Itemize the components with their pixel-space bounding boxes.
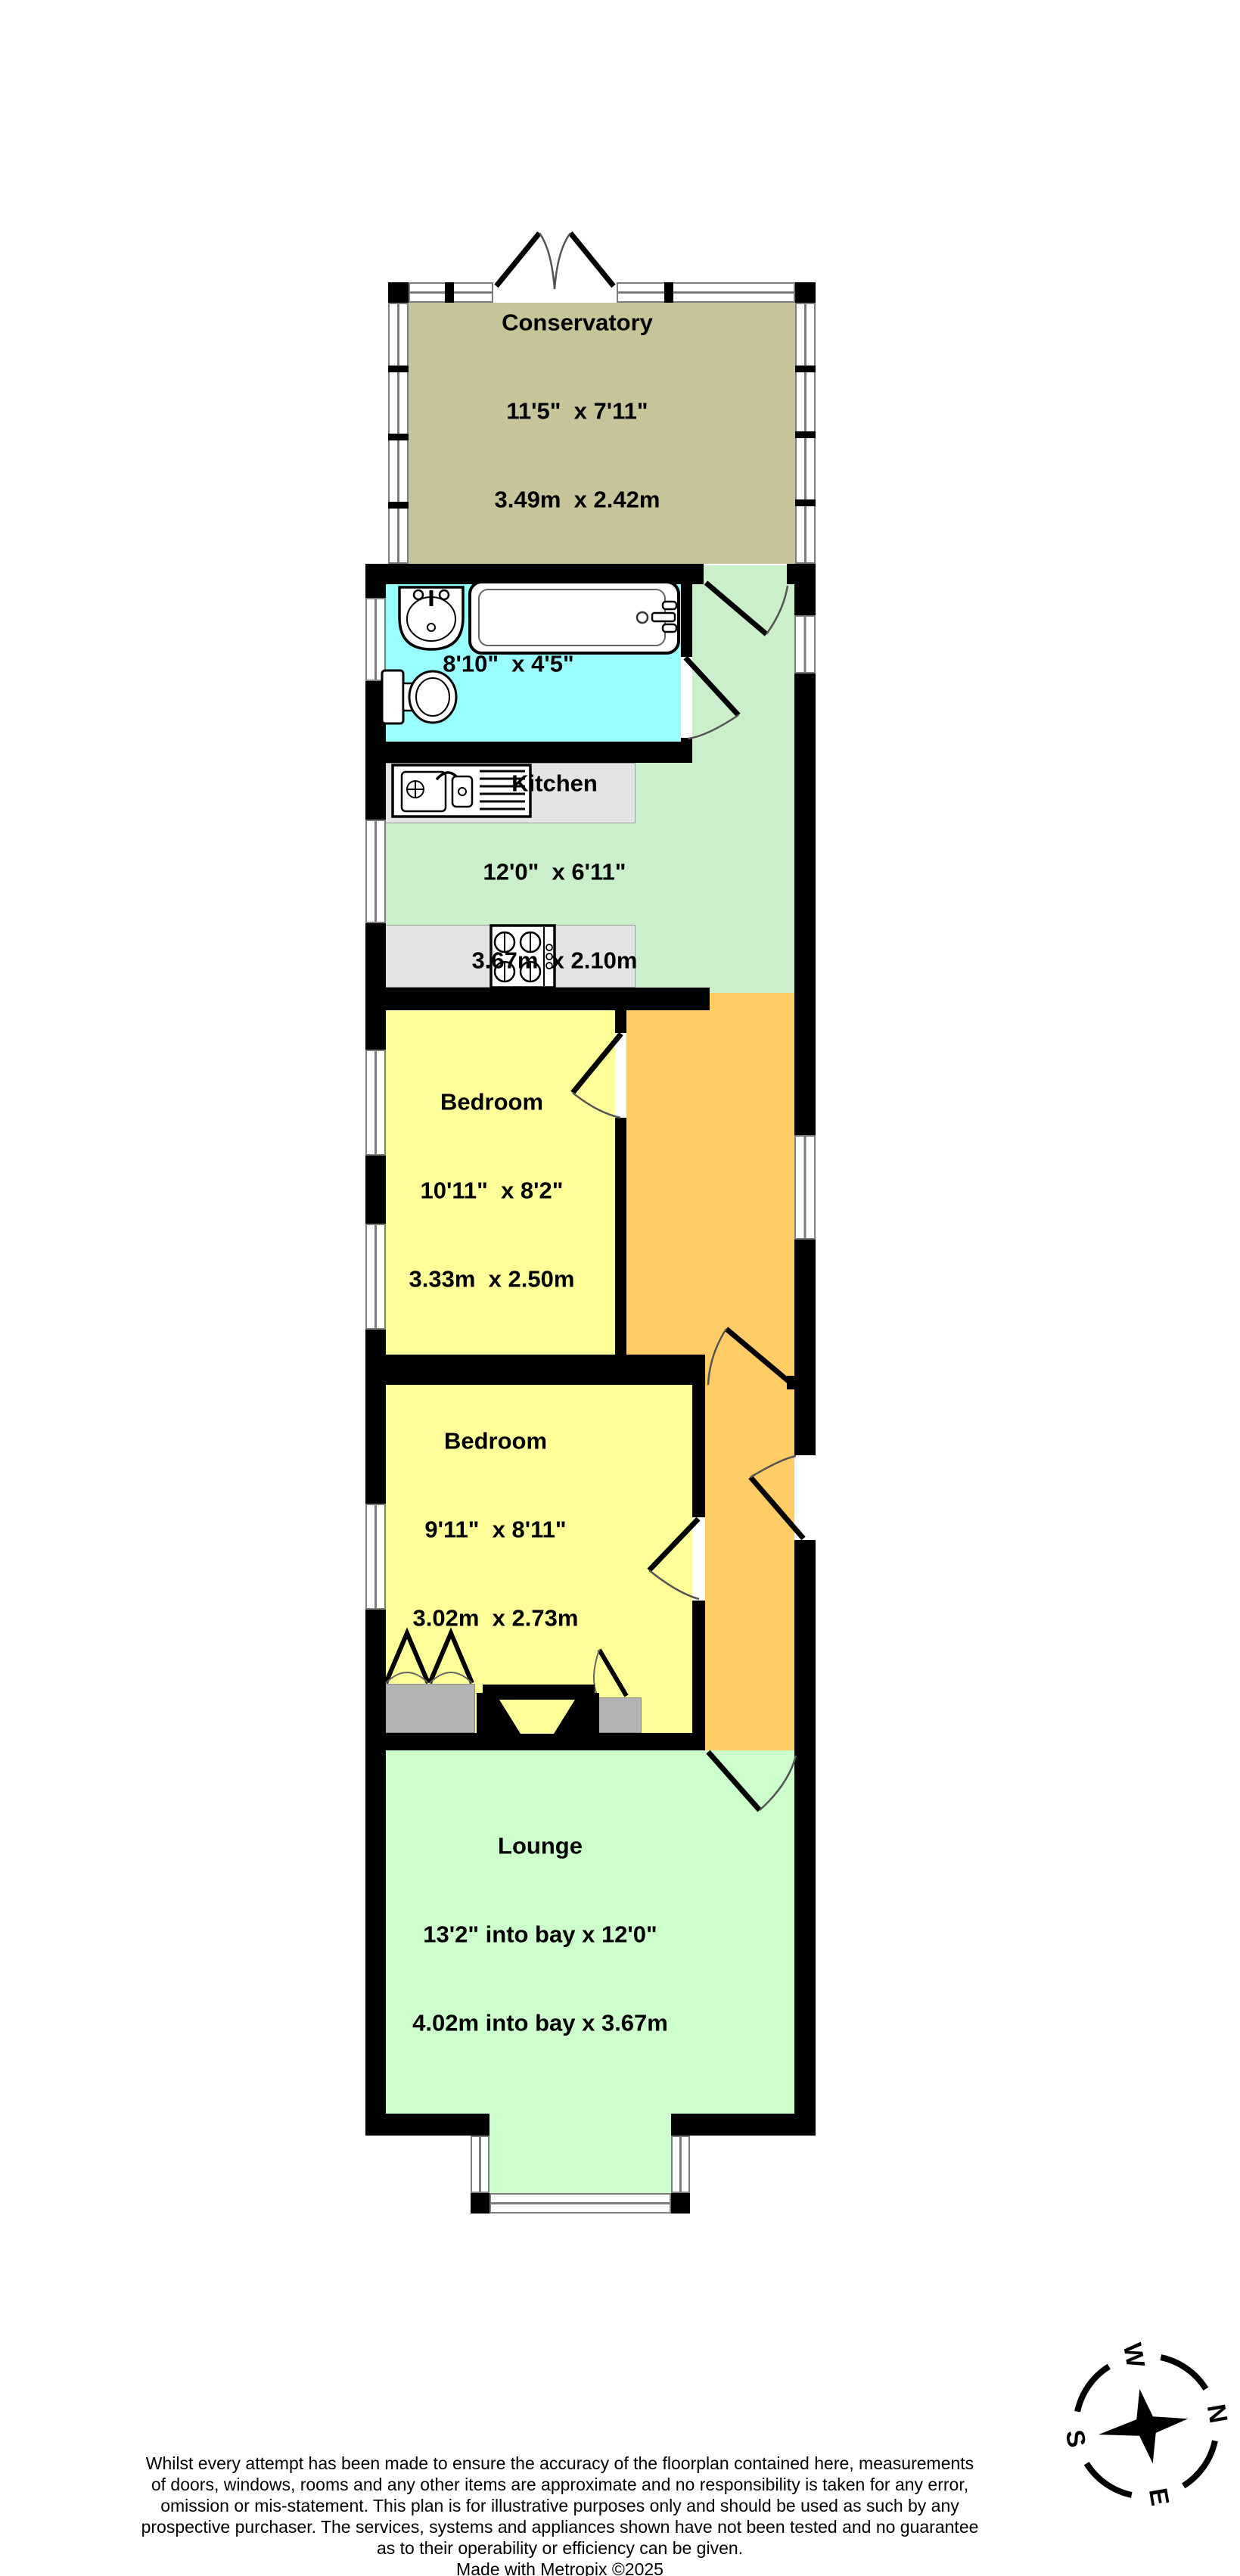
window bbox=[471, 2136, 489, 2193]
wall bbox=[681, 584, 692, 657]
window bbox=[794, 1135, 816, 1240]
wall bbox=[795, 282, 816, 303]
room-floor-hallway bbox=[705, 1355, 794, 1750]
closet bbox=[598, 1697, 642, 1733]
room-label-bedroom-2: Bedroom 9'11" x 8'11" 3.02m x 2.73m bbox=[413, 1367, 579, 1692]
compass-west-label: W bbox=[1117, 2341, 1150, 2370]
window bbox=[365, 598, 386, 681]
room-label-lounge: Lounge 13'2" into bay x 12'0" 4.02m into… bbox=[412, 1772, 668, 2097]
room-name: Bedroom bbox=[409, 1087, 575, 1117]
window-divider bbox=[388, 434, 409, 440]
compass-north-label: N bbox=[1201, 2402, 1233, 2425]
room-dims-imperial: 8'10" x 4'5" bbox=[426, 649, 592, 679]
wall bbox=[787, 564, 816, 584]
wall bbox=[794, 674, 816, 1135]
wall bbox=[471, 2193, 489, 2214]
room-dims-metric: 4.02m into bay x 3.67m bbox=[412, 2008, 668, 2038]
room-dims-metric: 3.02m x 2.73m bbox=[413, 1604, 579, 1633]
disclaimer: Whilst every attempt has been made to en… bbox=[53, 2453, 1067, 2576]
room-dims-metric: 3.67m x 2.10m bbox=[472, 946, 638, 975]
compass-rose-icon: N E S W bbox=[1055, 2335, 1237, 2517]
room-floor-hallway bbox=[626, 1010, 794, 1355]
wall bbox=[365, 1156, 386, 1224]
room-floor-vestibule-doorway bbox=[704, 565, 787, 584]
wall bbox=[681, 738, 692, 763]
wall bbox=[794, 1240, 816, 1455]
window bbox=[671, 2136, 690, 2193]
wall bbox=[365, 564, 386, 598]
disclaimer-line: of doors, windows, rooms and any other i… bbox=[53, 2474, 1067, 2495]
disclaimer-line: Whilst every attempt has been made to en… bbox=[53, 2453, 1067, 2474]
window-divider bbox=[388, 502, 409, 509]
wall bbox=[671, 2193, 690, 2214]
room-dims-imperial: 10'11" x 8'2" bbox=[409, 1176, 575, 1206]
floorplan-canvas: Conservatory 11'5" x 7'11" 3.49m x 2.42m… bbox=[0, 0, 1240, 2576]
room-dims-imperial: 12'0" x 6'11" bbox=[472, 857, 638, 887]
disclaimer-line: omission or mis-statement. This plan is … bbox=[53, 2495, 1067, 2516]
wall bbox=[365, 1610, 386, 2136]
compass-star bbox=[1092, 2382, 1195, 2472]
window bbox=[365, 1224, 386, 1330]
disclaimer-line: as to their operability or efficiency ca… bbox=[53, 2537, 1067, 2559]
window bbox=[365, 1504, 386, 1610]
wall bbox=[365, 1733, 705, 1750]
room-floor-hallway bbox=[710, 993, 794, 1010]
wall bbox=[388, 282, 409, 303]
window-divider bbox=[445, 282, 454, 303]
wall bbox=[671, 2114, 816, 2136]
wall bbox=[692, 1385, 705, 1517]
window-divider bbox=[664, 282, 673, 303]
room-floor-bay-window bbox=[489, 2114, 671, 2193]
room-name: Kitchen bbox=[472, 769, 638, 798]
credit-line: Made with Metropix ©2025 bbox=[53, 2559, 1067, 2576]
wall bbox=[794, 584, 816, 615]
compass-east-label: E bbox=[1143, 2486, 1174, 2508]
wall bbox=[365, 923, 386, 1050]
window-divider bbox=[795, 366, 816, 372]
wall bbox=[615, 1118, 626, 1355]
room-dims-imperial: 9'11" x 8'11" bbox=[413, 1515, 579, 1545]
room-dims-imperial: 13'2" into bay x 12'0" bbox=[412, 1920, 668, 1949]
window bbox=[489, 2193, 671, 2214]
compass-south-label: S bbox=[1060, 2428, 1091, 2450]
room-name: Lounge bbox=[412, 1831, 668, 1861]
window-divider bbox=[795, 499, 816, 506]
window bbox=[794, 615, 816, 674]
window-divider bbox=[795, 431, 816, 438]
disclaimer-line: prospective purchaser. The services, sys… bbox=[53, 2516, 1067, 2537]
room-dims-imperial: 11'5" x 7'11" bbox=[495, 397, 660, 426]
wall bbox=[692, 1601, 705, 1733]
room-name: Bathroom bbox=[426, 561, 592, 590]
room-label-bedroom-1: Bedroom 10'11" x 8'2" 3.33m x 2.50m bbox=[409, 1028, 575, 1353]
room-floor-vestibule bbox=[692, 584, 794, 993]
wall bbox=[365, 2114, 489, 2136]
window bbox=[365, 1050, 386, 1156]
room-label-kitchen: Kitchen 12'0" x 6'11" 3.67m x 2.10m bbox=[472, 710, 638, 1034]
room-name: Conservatory bbox=[495, 308, 660, 338]
room-name: Bedroom bbox=[413, 1426, 579, 1456]
room-dims-metric: 3.33m x 2.50m bbox=[409, 1265, 575, 1294]
door-hinge-stub bbox=[787, 1376, 799, 1389]
wall bbox=[794, 1540, 816, 2136]
window-divider bbox=[388, 366, 409, 372]
window bbox=[365, 820, 386, 923]
